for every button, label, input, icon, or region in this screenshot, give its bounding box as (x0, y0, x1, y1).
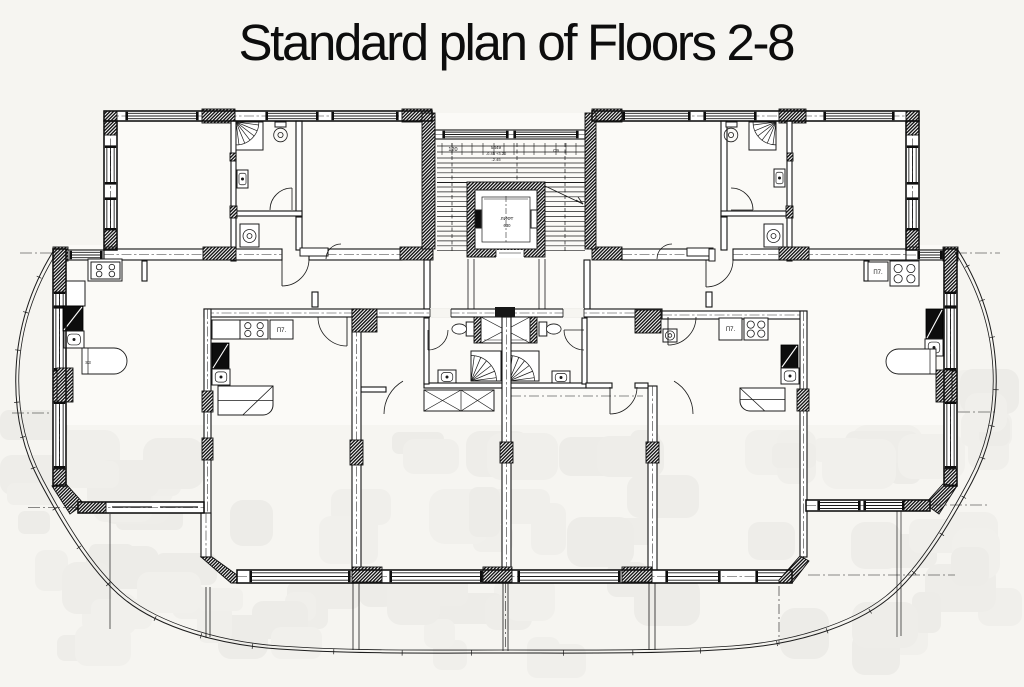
svg-text:П7.: П7. (277, 328, 287, 334)
svg-text:C9: C9 (553, 148, 559, 153)
svg-text:-2.45: -2.45 (491, 157, 501, 162)
svg-text:630: 630 (504, 223, 512, 228)
svg-text:-0.45 +3.20: -0.45 +3.20 (486, 151, 507, 156)
svg-text:5449: 5449 (491, 145, 502, 150)
svg-text:ЛИФТ: ЛИФТ (501, 216, 514, 222)
svg-text:Standard plan of Floors 2-8: Standard plan of Floors 2-8 (239, 14, 796, 71)
svg-text:S3: S3 (85, 360, 91, 365)
svg-text:120: 120 (448, 147, 457, 153)
svg-text:П7.: П7. (726, 327, 736, 333)
svg-text:П7.: П7. (873, 270, 883, 276)
